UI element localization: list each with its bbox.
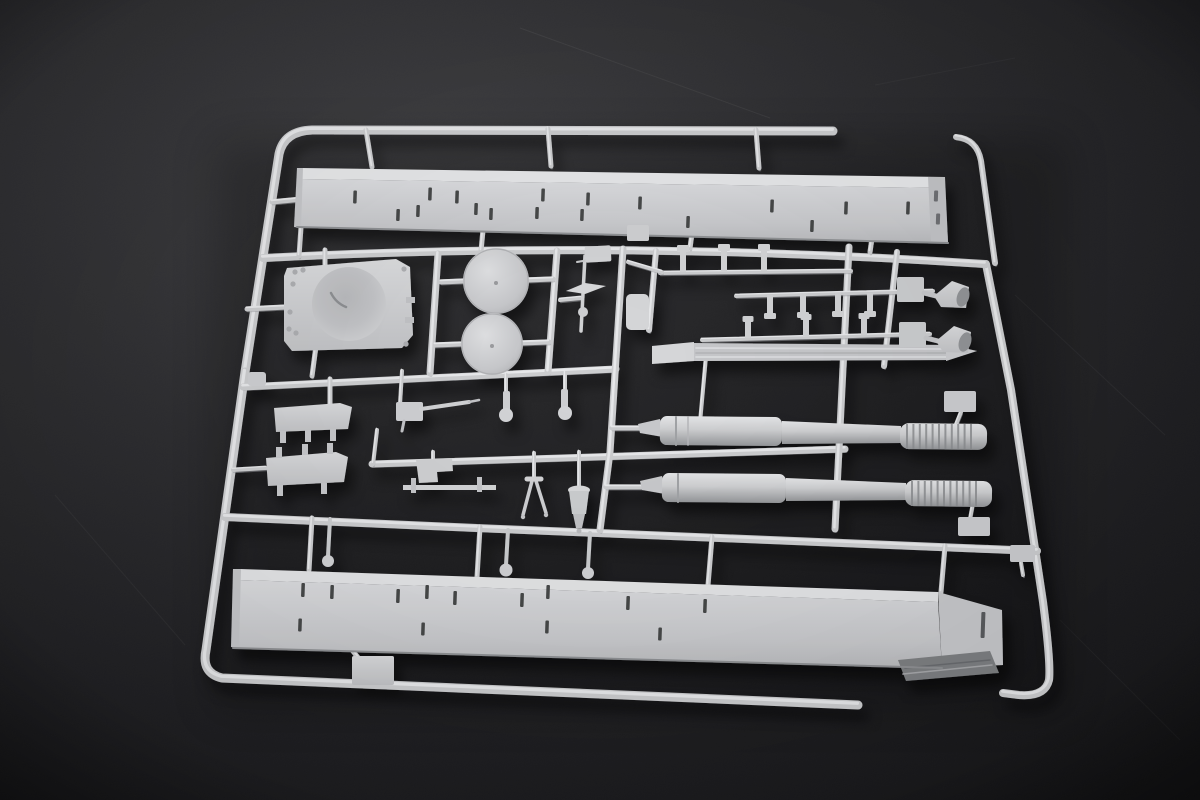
photo-model-kit-sprue: [0, 0, 1200, 800]
vignette-overlay: [0, 0, 1200, 800]
sprue-photo-canvas: [0, 0, 1200, 800]
